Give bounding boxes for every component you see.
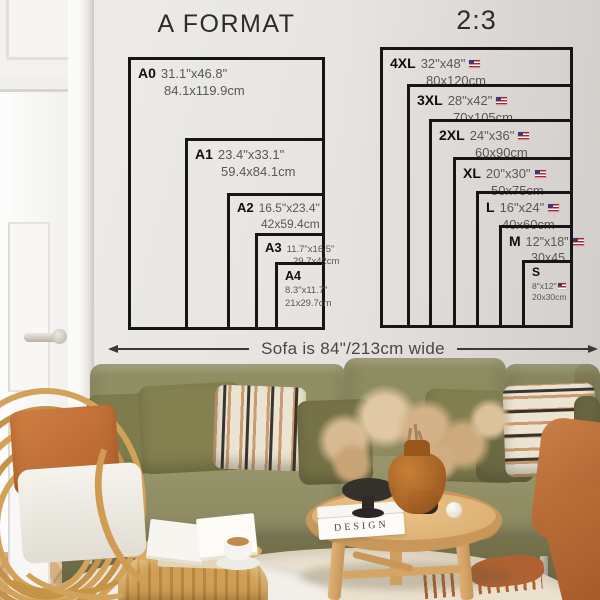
latte-surface <box>227 537 249 546</box>
size-label-row: L16"x24" <box>486 198 570 217</box>
size-label-row: 3XL28"x42" <box>417 91 570 110</box>
size-code: A4 <box>285 268 322 284</box>
size-label-row: 2XL24"x36" <box>439 126 570 145</box>
vase-neck <box>404 440 430 456</box>
sofa-width-measure: Sofa is 84"/213cm wide <box>108 340 598 358</box>
size-label-row: A216.5"x23.4" <box>237 200 322 217</box>
size-inches: 16"x24" <box>500 200 545 215</box>
size-label-row: A311.7"x16.5" <box>265 240 322 257</box>
size-inches: 28"x42" <box>448 93 493 108</box>
arrow-left-icon <box>108 345 118 353</box>
size-inches: 8.3"x11.7" <box>285 285 328 296</box>
measure-line <box>118 348 249 350</box>
size-inches: 32"x48" <box>421 56 466 71</box>
size-inches: 16.5"x23.4" <box>259 201 320 215</box>
size-code: L <box>486 199 495 215</box>
door-handle-rosette <box>52 329 67 344</box>
measure-line <box>457 348 588 350</box>
a-format-title: A FORMAT <box>128 10 325 39</box>
size-code: M <box>509 233 521 249</box>
size-code: A3 <box>265 240 282 255</box>
size-inches: 23.4"x33.1" <box>218 147 284 162</box>
size-inches: 24"x36" <box>470 128 515 143</box>
us-flag-icon <box>496 97 507 105</box>
us-flag-icon <box>558 283 566 289</box>
overdoor-molding <box>6 0 76 60</box>
size-code: 3XL <box>417 92 443 108</box>
size-code: A2 <box>237 200 254 215</box>
us-flag-icon <box>469 60 480 68</box>
size-code: A0 <box>138 65 156 81</box>
size-code: XL <box>463 165 481 181</box>
white-sphere <box>446 502 462 518</box>
size-inches: 31.1"x46.8" <box>161 66 227 81</box>
size-label-row: A48.3"x11.7" <box>285 268 322 298</box>
design-book-stack: DESIGN <box>317 501 405 541</box>
size-cm: 59.4x84.1cm <box>195 164 322 181</box>
size-label-row: XL20"x30" <box>463 164 570 183</box>
us-flag-icon <box>535 170 546 178</box>
bowl-foot <box>352 508 384 518</box>
arrow-right-icon <box>588 345 598 353</box>
size-label-row: S8"x12" <box>532 265 570 292</box>
size-label-row: M12"x18" <box>509 232 570 250</box>
size-code: A1 <box>195 146 213 162</box>
ratio-title: 2:3 <box>380 5 573 36</box>
dried-flowers <box>468 398 512 442</box>
size-cm: 20x30cm <box>532 292 570 303</box>
us-flag-icon <box>518 132 529 140</box>
size-label-row: A123.4"x33.1" <box>195 145 322 164</box>
size-rect-s: S8"x12" 20x30cm <box>522 260 573 328</box>
size-inches: 11.7"x16.5" <box>287 244 335 255</box>
measure-label: Sofa is 84"/213cm wide <box>261 339 445 359</box>
poster-size-guide-image: A FORMAT A031.1"x46.8" 84.1x119.9cm A123… <box>0 0 600 600</box>
size-code: S <box>532 265 570 281</box>
striped-pillow <box>213 384 308 471</box>
size-cm: 42x59.4cm <box>237 217 322 233</box>
size-cm: 21x29.7cm <box>285 298 322 310</box>
size-code: 4XL <box>390 55 416 71</box>
us-flag-icon <box>548 204 559 212</box>
size-cm: 84.1x119.9cm <box>138 83 322 100</box>
size-code: 2XL <box>439 127 465 143</box>
size-inches: 8"x12" <box>532 281 556 291</box>
us-flag-icon <box>573 238 584 246</box>
size-inches: 12"x18" <box>526 235 569 249</box>
size-label-row: 4XL32"x48" <box>390 54 570 73</box>
size-inches: 20"x30" <box>486 166 531 181</box>
door-panel <box>8 222 50 392</box>
size-label-row: A031.1"x46.8" <box>138 64 322 83</box>
size-rect-a4: A48.3"x11.7" 21x29.7cm <box>275 262 325 330</box>
